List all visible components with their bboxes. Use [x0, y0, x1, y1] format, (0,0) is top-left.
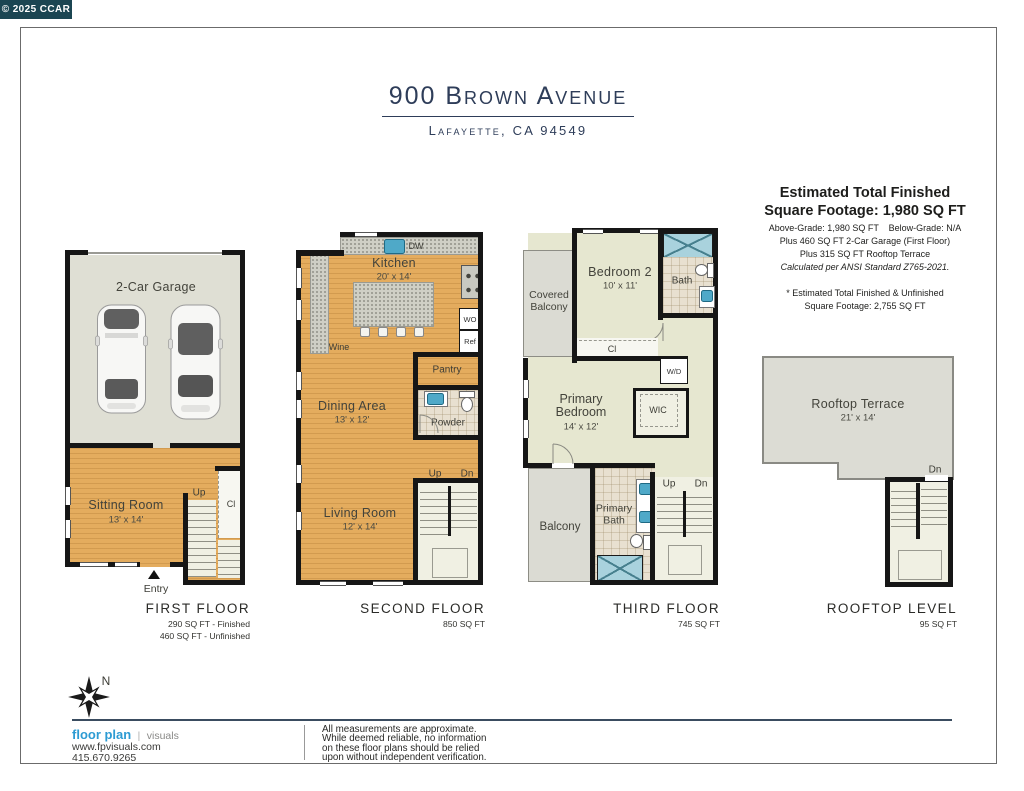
stair-divider	[448, 486, 451, 536]
staircase	[686, 491, 712, 533]
wall	[713, 228, 718, 585]
kitchen-label: Kitchen	[372, 256, 416, 270]
page-title: 900 Brown Avenue	[308, 82, 708, 111]
window	[296, 465, 302, 483]
first-floor-area-1: 290 SQ FT - Finished	[100, 619, 250, 631]
sqft-summary: Estimated Total Finished Square Footage:…	[742, 184, 988, 313]
window	[296, 372, 302, 390]
window	[65, 487, 71, 505]
stool-icon	[414, 327, 424, 337]
third-floor-title: THIRD FLOOR	[570, 601, 720, 616]
page-subtitle: Lafayette, CA 94549	[308, 123, 708, 138]
washer-dryer: W/D	[660, 358, 688, 384]
refrigerator-text: Ref	[464, 337, 476, 346]
stairs-down-label: Dn	[695, 479, 708, 490]
wine-label: Wine	[329, 342, 350, 352]
stair-divider	[916, 483, 920, 539]
rooftop-caption: ROOFTOP LEVEL 95 SQ FT	[807, 601, 957, 631]
window	[296, 268, 302, 288]
wall	[183, 580, 245, 585]
window	[296, 512, 302, 530]
shower-icon	[663, 233, 713, 258]
header: 900 Brown Avenue Lafayette, CA 94549	[308, 82, 708, 138]
second-floor-area: 850 SQ FT	[335, 619, 485, 631]
wall	[413, 435, 483, 440]
window	[296, 400, 302, 418]
sitting-room-dim: 13' x 14'	[109, 515, 144, 526]
wall	[65, 443, 153, 448]
summary-note-2: Square Footage: 2,755 SQ FT	[742, 300, 988, 313]
footer-disclaimer: All measurements are approximate. While …	[322, 725, 487, 762]
covered-balcony-label: Covered Balcony	[522, 289, 576, 313]
staircase	[420, 486, 448, 536]
primary-bath-label: Primary Bath	[590, 504, 638, 527]
brand-bold: floor plan	[72, 727, 131, 742]
door-arc-icon	[419, 414, 439, 434]
closet-label: Cl	[227, 499, 236, 509]
floor-plan-sheet: © 2025 CCAR 900 Brown Avenue Lafayette, …	[0, 0, 1024, 791]
window	[355, 232, 377, 237]
car-icon	[168, 303, 223, 421]
wall	[590, 580, 718, 585]
staircase	[218, 540, 240, 578]
door-opening	[925, 475, 948, 481]
wall	[478, 232, 483, 585]
summary-title-line2: Square Footage: 1,980 SQ FT	[742, 202, 988, 220]
wall-oven-text: WO	[464, 315, 477, 324]
dining-area-label: Dining Area	[318, 399, 386, 413]
staircase	[921, 483, 947, 525]
car-icon	[95, 303, 148, 415]
disclaimer-line-4: upon without independent verification.	[322, 753, 487, 762]
wall	[658, 313, 718, 318]
closet-dashed-line	[579, 340, 656, 341]
staircase	[188, 500, 216, 577]
copyright-badge: © 2025 CCAR	[0, 0, 72, 19]
wic-label: WIC	[649, 405, 667, 415]
staircase	[451, 486, 477, 534]
summary-detail-1: Above-Grade: 1,980 SQ FT Below-Grade: N/…	[742, 222, 988, 235]
kitchen-dim: 20' x 14'	[377, 272, 412, 283]
door-arc-icon	[552, 443, 574, 465]
stool-icon	[360, 327, 370, 337]
entry-label: Entry	[144, 583, 169, 595]
washer-dryer-text: W/D	[667, 367, 682, 376]
rooftop-area: 95 SQ FT	[807, 619, 957, 631]
staircase	[891, 485, 916, 529]
rooftop-terrace-label: Rooftop Terrace	[811, 397, 904, 411]
stairs-down-label: Dn	[461, 469, 474, 480]
stair-landing	[898, 550, 942, 580]
wall	[523, 358, 528, 468]
window	[373, 581, 403, 586]
shower-icon	[597, 555, 643, 582]
toilet-icon	[630, 534, 643, 548]
living-room-label: Living Room	[324, 506, 397, 520]
closet-label: Cl	[608, 344, 617, 354]
window	[523, 380, 529, 398]
closet-dashed-line	[218, 471, 219, 538]
entry-arrow-icon	[148, 570, 160, 579]
summary-title-line1: Estimated Total Finished	[742, 184, 988, 202]
staircase	[657, 491, 683, 535]
first-floor-area-2: 460 SQ FT - Unfinished	[100, 631, 250, 643]
footer-phone: 415.670.9265	[72, 752, 136, 764]
first-floor-title: FIRST FLOOR	[100, 601, 250, 616]
dining-area-dim: 13' x 12'	[335, 415, 370, 426]
second-floor-caption: SECOND FLOOR 850 SQ FT	[335, 601, 485, 631]
sink-icon	[701, 290, 713, 302]
footer-divider	[304, 725, 305, 760]
wall	[296, 250, 344, 256]
footer-rule	[72, 719, 952, 721]
first-floor-caption: FIRST FLOOR 290 SQ FT - Finished 460 SQ …	[100, 601, 250, 642]
window	[115, 562, 137, 567]
sink-icon	[427, 393, 444, 405]
window	[523, 420, 529, 438]
stairs-down-label: Dn	[929, 465, 942, 476]
wall	[240, 250, 245, 585]
primary-bedroom-label: Primary Bedroom	[549, 393, 613, 419]
stool-icon	[396, 327, 406, 337]
pantry-label: Pantry	[433, 365, 462, 376]
stair-landing	[432, 548, 468, 578]
summary-detail-4: Calculated per ANSI Standard Z765-2021.	[742, 261, 988, 274]
primary-bedroom-dim: 14' x 12'	[564, 422, 599, 433]
window	[80, 562, 108, 567]
toilet-icon	[707, 263, 714, 278]
window	[640, 229, 660, 234]
bath-label: Bath	[672, 276, 693, 287]
stair-divider	[683, 491, 686, 537]
kitchen-island	[353, 282, 434, 327]
garage-label: 2-Car Garage	[116, 280, 196, 294]
sink-icon	[384, 239, 405, 254]
kitchen-counter	[310, 253, 329, 354]
third-floor-caption: THIRD FLOOR 745 SQ FT	[570, 601, 720, 631]
balcony-label: Balcony	[540, 521, 581, 533]
bedroom2-label: Bedroom 2	[588, 265, 652, 279]
summary-detail-2: Plus 460 SQ FT 2-Car Garage (First Floor…	[742, 235, 988, 248]
third-floor-area: 745 SQ FT	[570, 619, 720, 631]
summary-detail-3: Plus 315 SQ FT Rooftop Terrace	[742, 248, 988, 261]
dishwasher-label: DW	[409, 241, 424, 251]
wall	[413, 352, 483, 357]
stairs-up-label: Up	[193, 488, 206, 499]
window	[320, 581, 346, 586]
window	[583, 229, 603, 234]
title-underline	[382, 116, 634, 117]
window	[296, 300, 302, 320]
summary-note-1: * Estimated Total Finished & Unfinished	[742, 287, 988, 300]
stairs-up-label: Up	[663, 479, 676, 490]
wall	[170, 443, 245, 448]
stairs-up-label: Up	[429, 469, 442, 480]
living-room-dim: 12' x 14'	[343, 522, 378, 533]
second-floor-title: SECOND FLOOR	[335, 601, 485, 616]
sitting-room-label: Sitting Room	[88, 498, 163, 512]
window	[65, 520, 71, 538]
garage-door	[88, 250, 222, 255]
toilet-icon	[461, 397, 473, 412]
bedroom2-dim: 10' x 11'	[603, 281, 637, 292]
rooftop-terrace-dim: 21' x 14'	[841, 413, 876, 424]
rooftop-title: ROOFTOP LEVEL	[807, 601, 957, 616]
stool-icon	[378, 327, 388, 337]
compass-n-label: N	[102, 674, 111, 688]
stair-landing	[668, 545, 702, 575]
